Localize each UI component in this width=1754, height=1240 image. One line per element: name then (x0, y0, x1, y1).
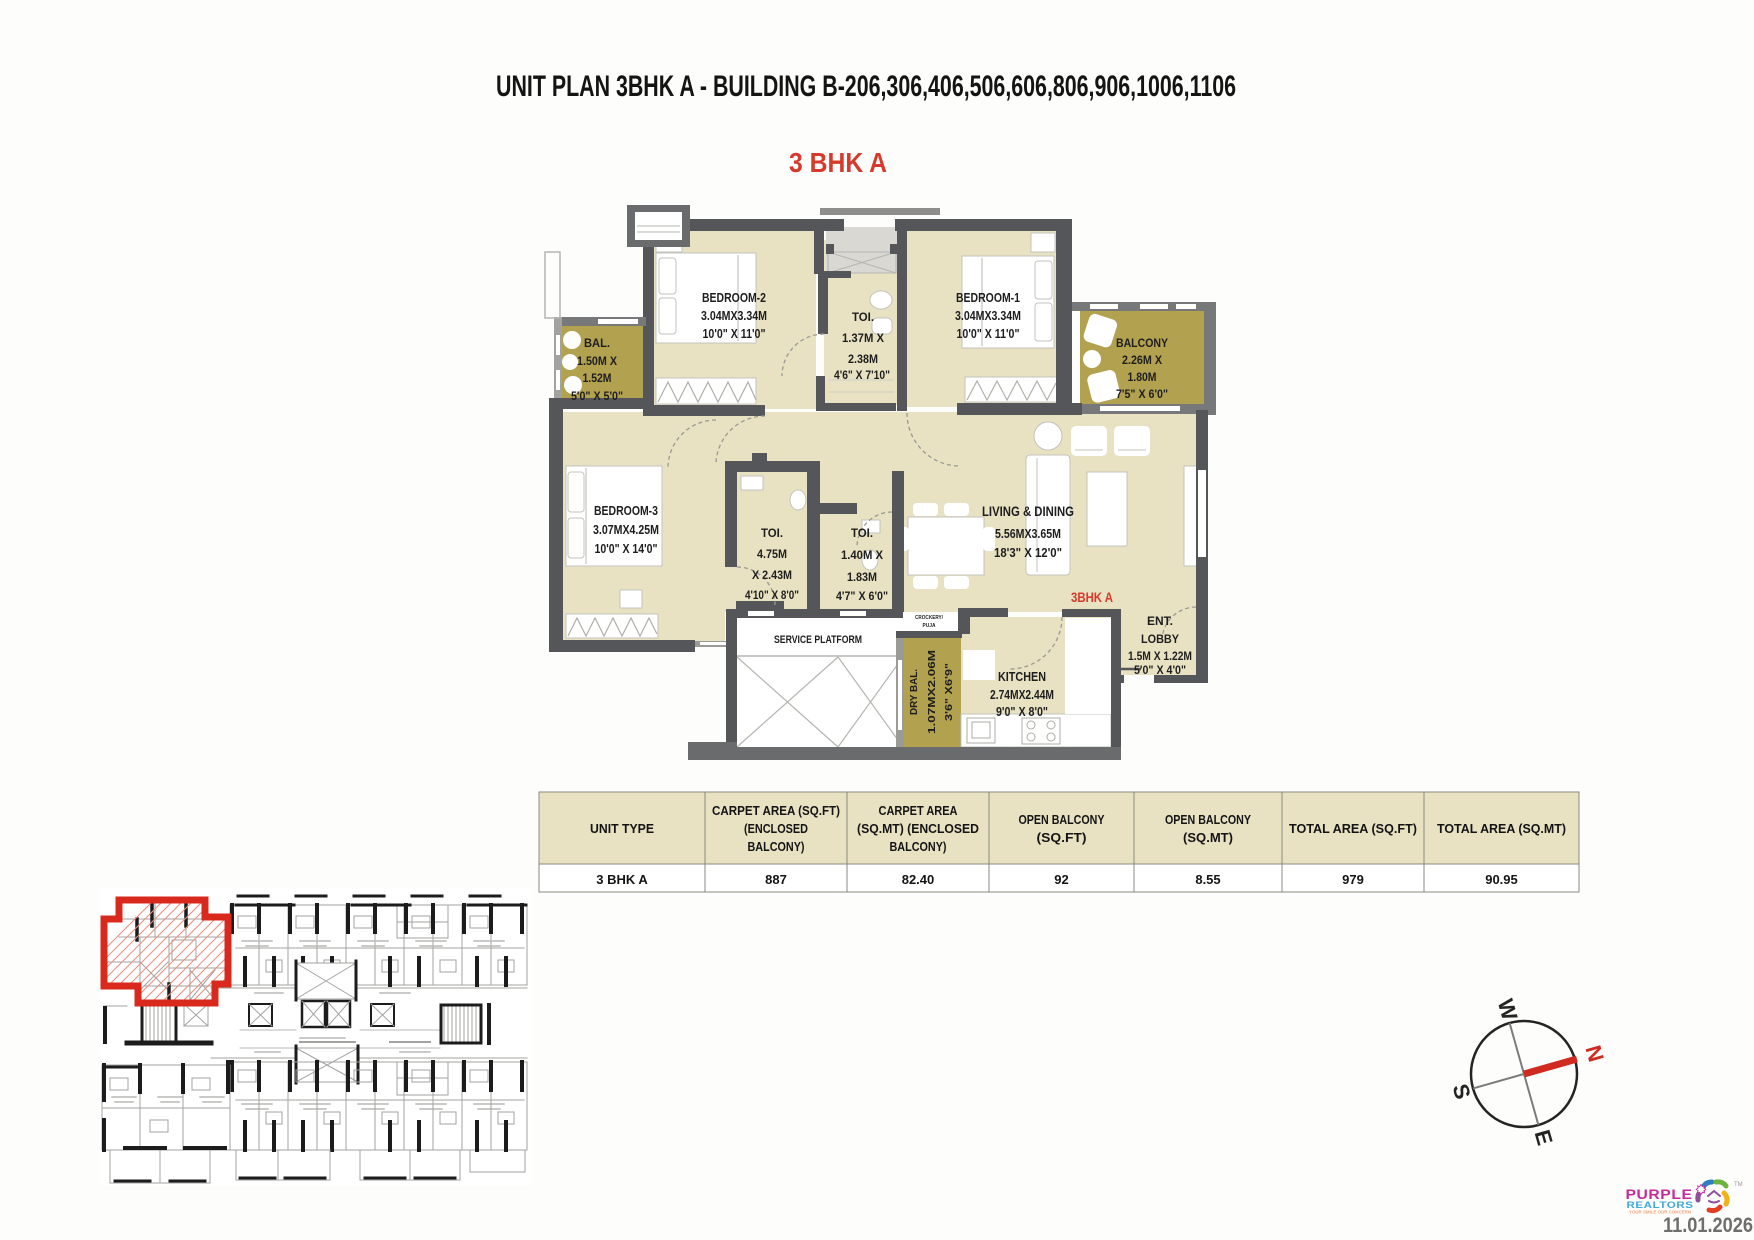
svg-text:1.83M: 1.83M (847, 570, 877, 584)
svg-text:(SQ.MT): (SQ.MT) (1183, 830, 1233, 845)
svg-text:BALCONY: BALCONY (1116, 336, 1168, 350)
svg-text:BEDROOM-2: BEDROOM-2 (702, 290, 766, 305)
svg-text:11.01.2026: 11.01.2026 (1663, 1214, 1753, 1237)
svg-text:3.04MX3.34M: 3.04MX3.34M (955, 308, 1021, 323)
svg-text:BALCONY): BALCONY) (890, 839, 947, 854)
svg-text:4'10" X 8'0": 4'10" X 8'0" (745, 588, 799, 602)
svg-text:5'0" X 4'0": 5'0" X 4'0" (1134, 663, 1186, 677)
svg-text:887: 887 (765, 872, 787, 887)
svg-text:TOI.: TOI. (851, 526, 873, 540)
svg-text:9'0" X 8'0": 9'0" X 8'0" (996, 704, 1048, 719)
svg-text:CARPET AREA: CARPET AREA (879, 803, 959, 818)
svg-text:LOBBY: LOBBY (1141, 632, 1179, 646)
svg-text:OPEN BALCONY: OPEN BALCONY (1019, 812, 1105, 827)
svg-text:LIVING & DINING: LIVING & DINING (982, 503, 1074, 519)
svg-text:5.56MX3.65M: 5.56MX3.65M (995, 526, 1061, 541)
svg-text:SERVICE PLATFORM: SERVICE PLATFORM (774, 634, 862, 646)
svg-text:OPEN BALCONY: OPEN BALCONY (1165, 812, 1251, 827)
svg-text:1.52M: 1.52M (583, 371, 612, 385)
svg-text:3.07MX4.25M: 3.07MX4.25M (593, 522, 659, 537)
svg-text:5'0" X 5'0": 5'0" X 5'0" (571, 389, 623, 403)
svg-text:TOTAL AREA (SQ.FT): TOTAL AREA (SQ.FT) (1289, 821, 1417, 836)
svg-text:1.37M X: 1.37M X (842, 331, 884, 345)
svg-text:82.40: 82.40 (902, 872, 935, 887)
svg-text:BAL.: BAL. (584, 336, 610, 350)
svg-text:X 2.43M: X 2.43M (752, 568, 792, 582)
svg-text:8.55: 8.55 (1195, 872, 1220, 887)
svg-text:10'0" X 11'0": 10'0" X 11'0" (703, 326, 766, 341)
svg-text:CROCKERY/: CROCKERY/ (915, 615, 943, 621)
svg-text:UNIT TYPE: UNIT TYPE (590, 821, 654, 836)
svg-text:7'5" X 6'0": 7'5" X 6'0" (1116, 387, 1168, 401)
svg-text:CARPET AREA (SQ.FT): CARPET AREA (SQ.FT) (712, 803, 840, 818)
svg-text:DRY BAL.: DRY BAL. (909, 669, 920, 715)
svg-text:3 BHK A: 3 BHK A (789, 147, 887, 178)
svg-text:2.26M X: 2.26M X (1122, 353, 1162, 367)
svg-text:4'6" X 7'10": 4'6" X 7'10" (834, 368, 890, 382)
svg-text:4'7" X 6'0": 4'7" X 6'0" (836, 589, 888, 603)
svg-text:(SQ.MT) (ENCLOSED: (SQ.MT) (ENCLOSED (857, 821, 979, 836)
svg-text:4.75M: 4.75M (757, 547, 787, 561)
svg-text:10'0" X 14'0": 10'0" X 14'0" (595, 541, 658, 556)
svg-text:TOI.: TOI. (852, 310, 874, 324)
svg-text:TM: TM (1734, 1182, 1743, 1188)
svg-text:PUJA: PUJA (923, 623, 936, 629)
svg-text:3 BHK A: 3 BHK A (596, 872, 648, 887)
svg-text:3BHK A: 3BHK A (1071, 589, 1113, 605)
svg-text:1.50M X: 1.50M X (577, 354, 617, 368)
svg-text:18'3" X 12'0": 18'3" X 12'0" (994, 545, 1062, 560)
svg-text:2.38M: 2.38M (848, 352, 878, 366)
svg-text:92: 92 (1054, 872, 1068, 887)
svg-text:3'6" X6'9": 3'6" X6'9" (944, 663, 955, 721)
svg-text:TOI.: TOI. (761, 526, 783, 540)
svg-text:1.40M X: 1.40M X (841, 548, 883, 562)
svg-text:2.74MX2.44M: 2.74MX2.44M (990, 687, 1054, 702)
svg-text:1.5M X 1.22M: 1.5M X 1.22M (1128, 649, 1192, 663)
svg-text:(ENCLOSED: (ENCLOSED (744, 821, 808, 836)
svg-text:BEDROOM-1: BEDROOM-1 (956, 290, 1020, 305)
svg-text:3.04MX3.34M: 3.04MX3.34M (701, 308, 767, 323)
svg-text:979: 979 (1342, 872, 1364, 887)
svg-text:90.95: 90.95 (1485, 872, 1518, 887)
svg-text:BEDROOM-3: BEDROOM-3 (594, 503, 658, 518)
svg-text:1.07MX2.06M: 1.07MX2.06M (927, 650, 938, 734)
svg-text:TOTAL AREA (SQ.MT): TOTAL AREA (SQ.MT) (1437, 821, 1566, 836)
svg-text:BALCONY): BALCONY) (748, 839, 805, 854)
svg-text:ENT.: ENT. (1147, 614, 1173, 628)
svg-text:UNIT PLAN 3BHK A - BUILDING B-: UNIT PLAN 3BHK A - BUILDING B-206,306,40… (496, 70, 1236, 103)
svg-text:(SQ.FT): (SQ.FT) (1037, 830, 1087, 845)
svg-text:1.80M: 1.80M (1128, 370, 1157, 384)
svg-text:10'0" X 11'0": 10'0" X 11'0" (957, 326, 1020, 341)
svg-text:KITCHEN: KITCHEN (998, 669, 1046, 684)
